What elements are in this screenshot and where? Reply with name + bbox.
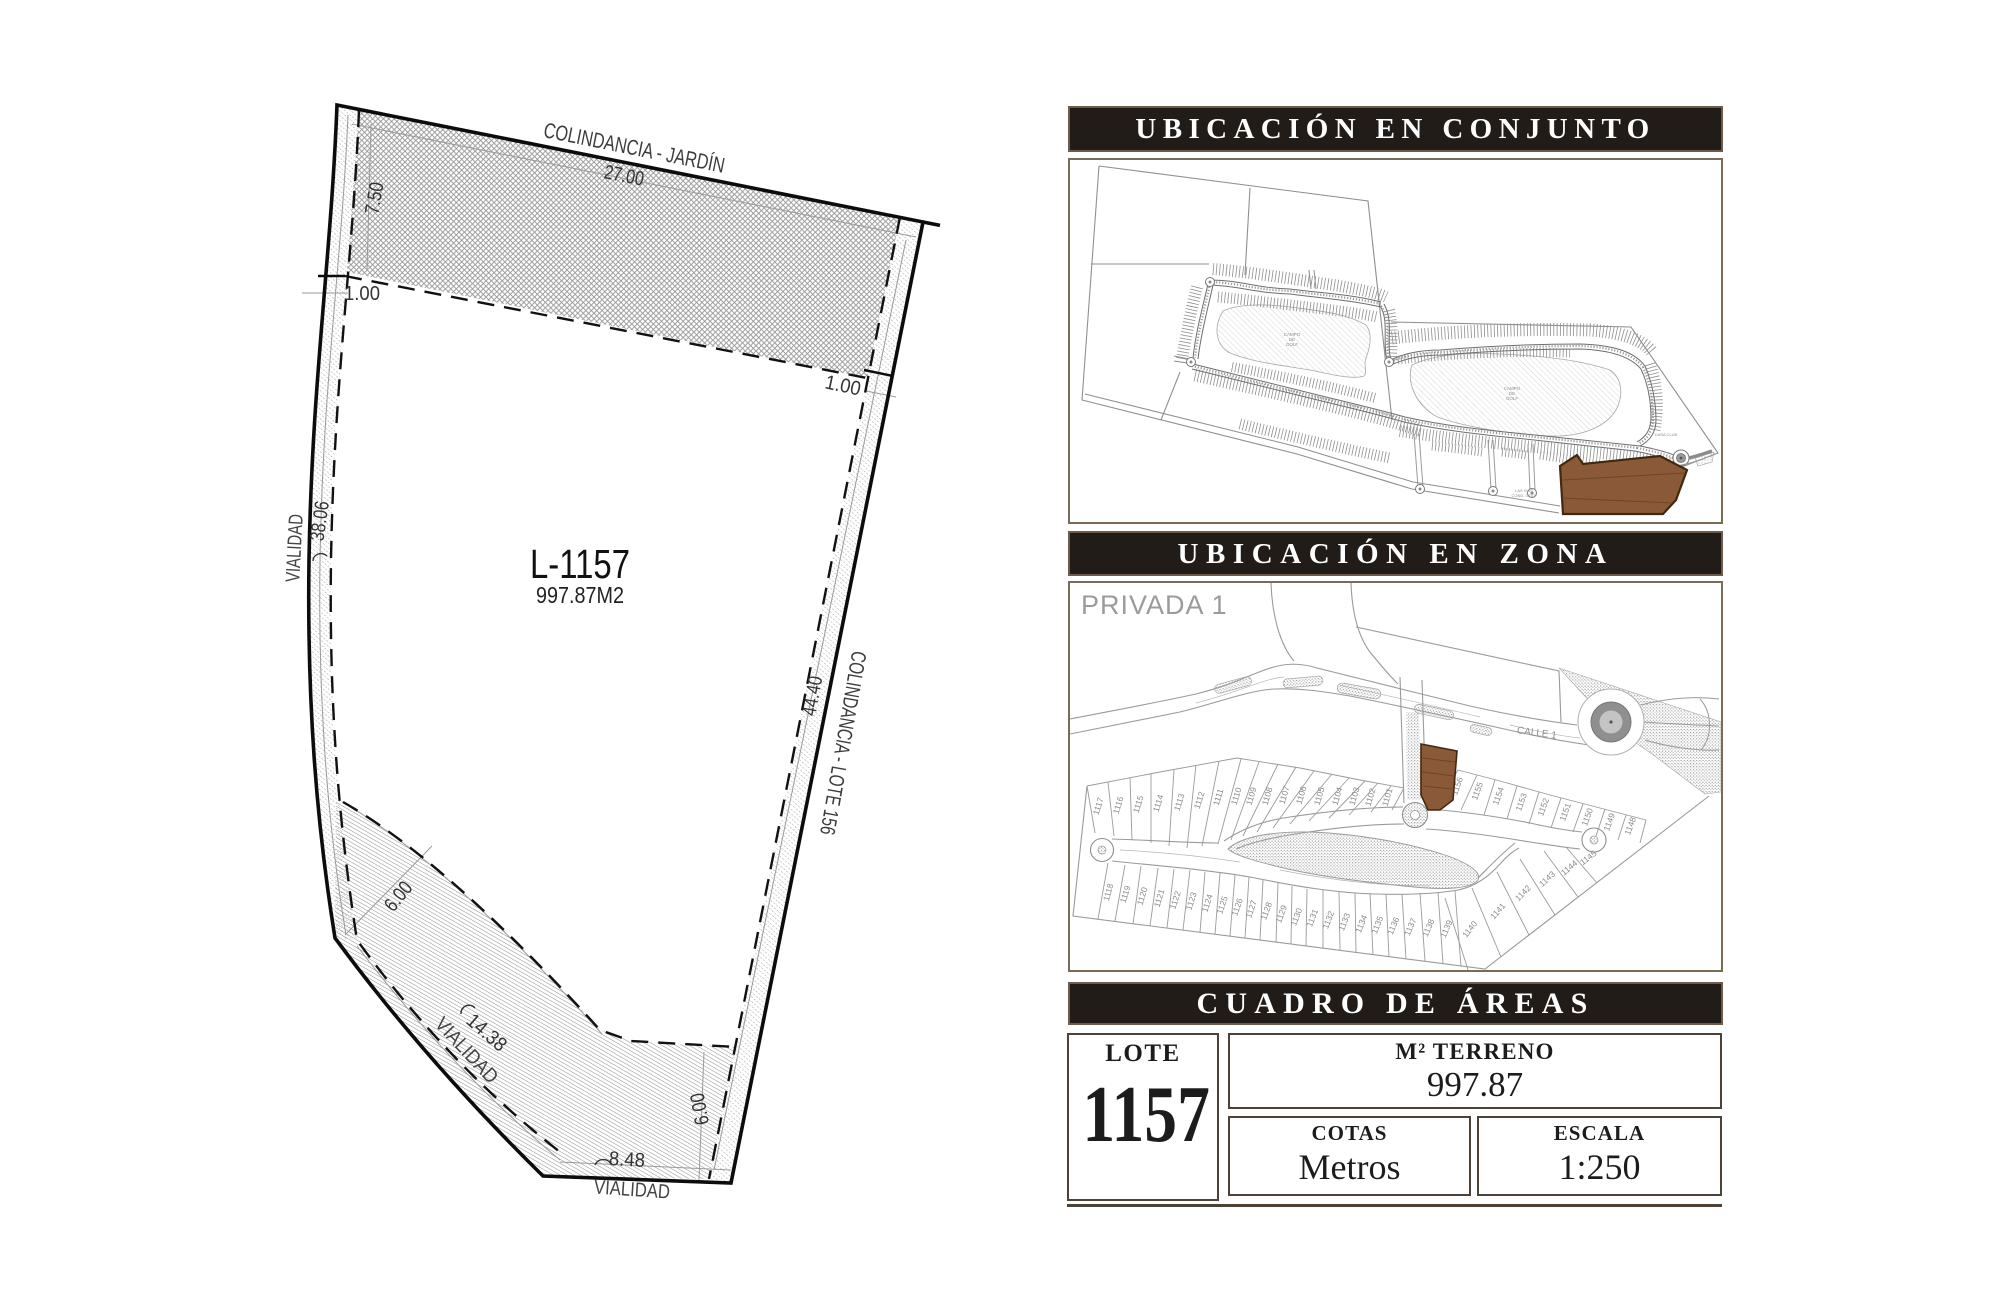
svg-text:1119: 1119 [1118, 884, 1133, 904]
svg-text:1102: 1102 [1363, 787, 1378, 808]
svg-text:1110: 1110 [1229, 786, 1244, 806]
svg-text:1112: 1112 [1192, 790, 1207, 810]
svg-text:GOLF: GOLF [1506, 396, 1519, 401]
svg-text:1107: 1107 [1277, 785, 1292, 806]
svg-text:PRIVADA 1: PRIVADA 1 [1081, 590, 1228, 620]
svg-text:1108: 1108 [1260, 786, 1275, 807]
svg-text:1105: 1105 [1312, 786, 1327, 807]
svg-text:1113: 1113 [1172, 792, 1187, 812]
svg-text:997.87M2: 997.87M2 [536, 582, 624, 608]
svg-text:1116: 1116 [1111, 795, 1126, 815]
svg-text:1142: 1142 [1513, 883, 1533, 903]
svg-text:1104: 1104 [1330, 786, 1345, 807]
svg-text:1128: 1128 [1258, 900, 1274, 921]
svg-text:1125: 1125 [1214, 894, 1229, 915]
svg-text:COND. GOLF: COND. GOLF [1512, 493, 1537, 498]
svg-text:1153: 1153 [1513, 791, 1529, 812]
svg-text:1150: 1150 [1579, 806, 1595, 827]
svg-text:1141: 1141 [1488, 901, 1508, 922]
svg-text:1149: 1149 [1601, 811, 1617, 832]
svg-text:1137: 1137 [1402, 916, 1418, 937]
svg-text:1118: 1118 [1101, 882, 1116, 902]
svg-text:1124: 1124 [1200, 893, 1215, 914]
svg-text:1123: 1123 [1184, 891, 1199, 912]
svg-text:1129: 1129 [1273, 903, 1289, 924]
svg-text:1127: 1127 [1243, 898, 1258, 919]
svg-text:GOLF: GOLF [1286, 342, 1299, 347]
svg-text:CASA CLUB: CASA CLUB [1655, 432, 1678, 437]
svg-text:CALLE 1: CALLE 1 [1516, 725, 1558, 742]
svg-text:1126: 1126 [1229, 896, 1244, 917]
svg-text:1143: 1143 [1537, 869, 1557, 889]
svg-text:1140: 1140 [1460, 919, 1479, 940]
svg-text:1130: 1130 [1288, 906, 1304, 927]
svg-text:1101: 1101 [1380, 787, 1395, 808]
svg-text:1138: 1138 [1420, 917, 1436, 938]
svg-text:1122: 1122 [1168, 890, 1183, 911]
svg-text:VIALIDAD: VIALIDAD [282, 514, 308, 583]
svg-text:1106: 1106 [1294, 785, 1309, 806]
svg-text:1152: 1152 [1535, 796, 1551, 817]
svg-text:1120: 1120 [1135, 886, 1150, 907]
svg-text:1151: 1151 [1557, 801, 1573, 822]
svg-text:1155: 1155 [1469, 780, 1485, 801]
svg-text:1115: 1115 [1131, 794, 1146, 814]
svg-text:1109: 1109 [1244, 786, 1259, 807]
svg-text:1133: 1133 [1336, 911, 1352, 932]
svg-text:8.48: 8.48 [608, 1148, 645, 1172]
svg-text:1114: 1114 [1151, 793, 1166, 813]
svg-text:1117: 1117 [1091, 796, 1106, 816]
svg-text:L-1157: L-1157 [530, 541, 630, 587]
svg-text:1144: 1144 [1559, 858, 1580, 878]
svg-text:VIALIDAD: VIALIDAD [593, 1176, 670, 1203]
svg-text:1121: 1121 [1152, 888, 1167, 909]
svg-text:1.00: 1.00 [344, 283, 380, 305]
